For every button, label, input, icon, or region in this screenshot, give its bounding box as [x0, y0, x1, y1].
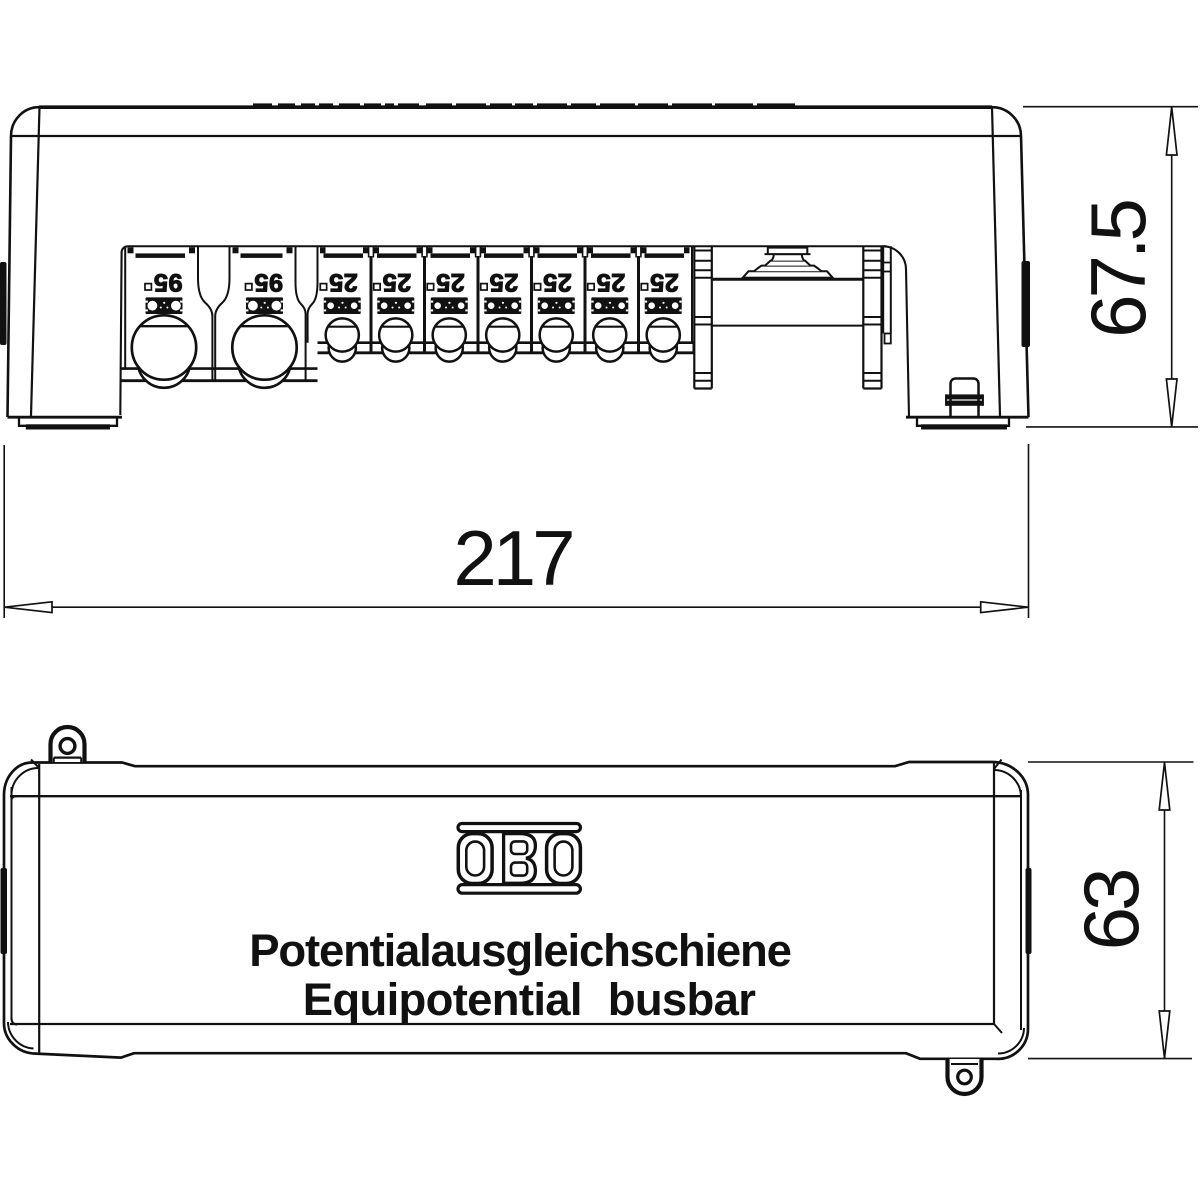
- svg-text:63: 63: [1067, 871, 1155, 950]
- svg-text:25: 25: [650, 268, 679, 296]
- svg-text:217: 217: [453, 514, 572, 602]
- svg-text:25: 25: [329, 268, 358, 296]
- svg-text:25: 25: [382, 268, 411, 296]
- svg-text:Potentialausgleichschiene: Potentialausgleichschiene: [249, 925, 790, 976]
- svg-text:25: 25: [596, 268, 625, 296]
- svg-text:95: 95: [254, 268, 283, 296]
- svg-text:25: 25: [436, 268, 465, 296]
- svg-text:25: 25: [543, 268, 572, 296]
- svg-text:95: 95: [153, 268, 182, 296]
- svg-text:67.5: 67.5: [1074, 200, 1162, 337]
- svg-text:Equipotential busbar: Equipotential busbar: [303, 974, 756, 1025]
- svg-text:25: 25: [489, 268, 518, 296]
